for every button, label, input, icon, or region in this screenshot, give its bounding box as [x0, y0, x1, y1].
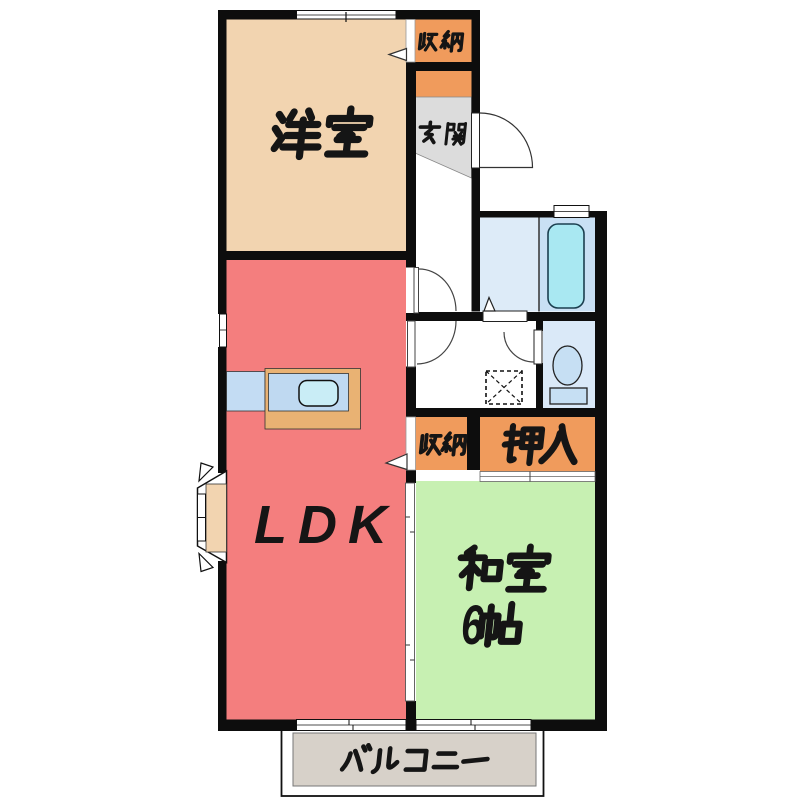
svg-text:LDK: LDK	[254, 495, 398, 555]
